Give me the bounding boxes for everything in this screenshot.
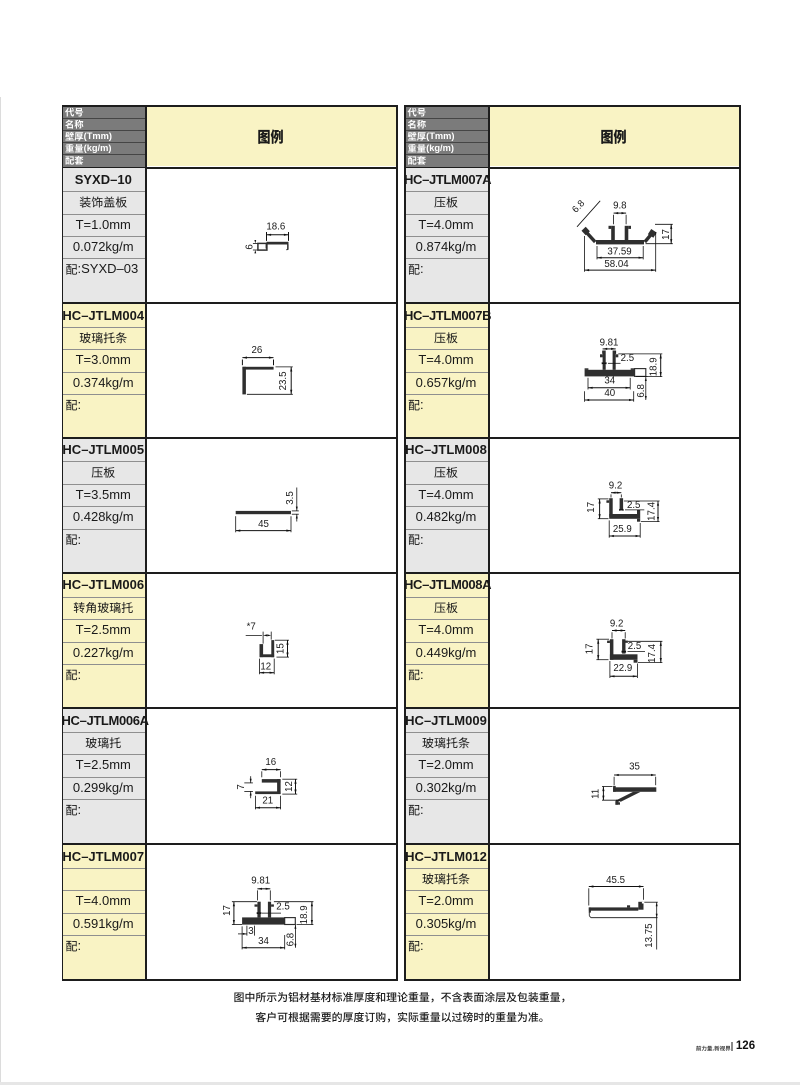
svg-text:12: 12 <box>260 661 271 672</box>
svg-text:17.4: 17.4 <box>647 643 658 662</box>
svg-text:16: 16 <box>265 757 276 768</box>
svg-text:6.8: 6.8 <box>570 198 587 215</box>
svg-text:9.81: 9.81 <box>251 876 270 887</box>
svg-text:18.9: 18.9 <box>649 357 660 376</box>
svg-text:2.5: 2.5 <box>276 902 289 913</box>
svg-text:9.81: 9.81 <box>600 337 619 348</box>
svg-text:22.9: 22.9 <box>613 663 632 674</box>
svg-text:37.59: 37.59 <box>607 246 631 257</box>
svg-text:34: 34 <box>258 936 269 947</box>
svg-text:17: 17 <box>585 644 596 655</box>
svg-text:17: 17 <box>222 905 233 916</box>
svg-text:18.6: 18.6 <box>266 222 285 233</box>
svg-text:17: 17 <box>586 502 597 513</box>
svg-text:17.4: 17.4 <box>646 501 657 520</box>
svg-text:6.8: 6.8 <box>286 933 297 946</box>
svg-text:9.2: 9.2 <box>610 619 623 630</box>
svg-text:3: 3 <box>248 926 253 937</box>
svg-text:34: 34 <box>604 375 615 386</box>
svg-text:2.5: 2.5 <box>627 500 640 511</box>
svg-text:45: 45 <box>258 519 269 530</box>
svg-text:35: 35 <box>629 761 640 772</box>
svg-text:15: 15 <box>276 643 287 654</box>
svg-text:21: 21 <box>262 796 273 807</box>
svg-text:45.5: 45.5 <box>606 875 625 886</box>
svg-text:7: 7 <box>236 784 247 789</box>
svg-text:17: 17 <box>661 229 672 240</box>
svg-text:9.2: 9.2 <box>609 481 622 492</box>
svg-text:11: 11 <box>591 789 602 799</box>
svg-text:13.75: 13.75 <box>644 923 655 947</box>
svg-text:58.04: 58.04 <box>604 259 629 270</box>
svg-text:2.5: 2.5 <box>621 353 634 364</box>
svg-text:40: 40 <box>604 388 615 399</box>
svg-text:*7: *7 <box>247 621 256 632</box>
svg-text:3.5: 3.5 <box>285 491 296 504</box>
svg-text:26: 26 <box>252 345 263 356</box>
svg-text:25.9: 25.9 <box>613 524 632 535</box>
svg-text:2.5: 2.5 <box>628 641 641 652</box>
svg-text:6: 6 <box>244 244 255 249</box>
svg-text:18.9: 18.9 <box>299 905 310 924</box>
svg-text:12: 12 <box>284 781 295 792</box>
svg-text:23.5: 23.5 <box>278 371 289 390</box>
svg-text:6.8: 6.8 <box>636 384 647 397</box>
svg-text:9.8: 9.8 <box>613 200 626 211</box>
